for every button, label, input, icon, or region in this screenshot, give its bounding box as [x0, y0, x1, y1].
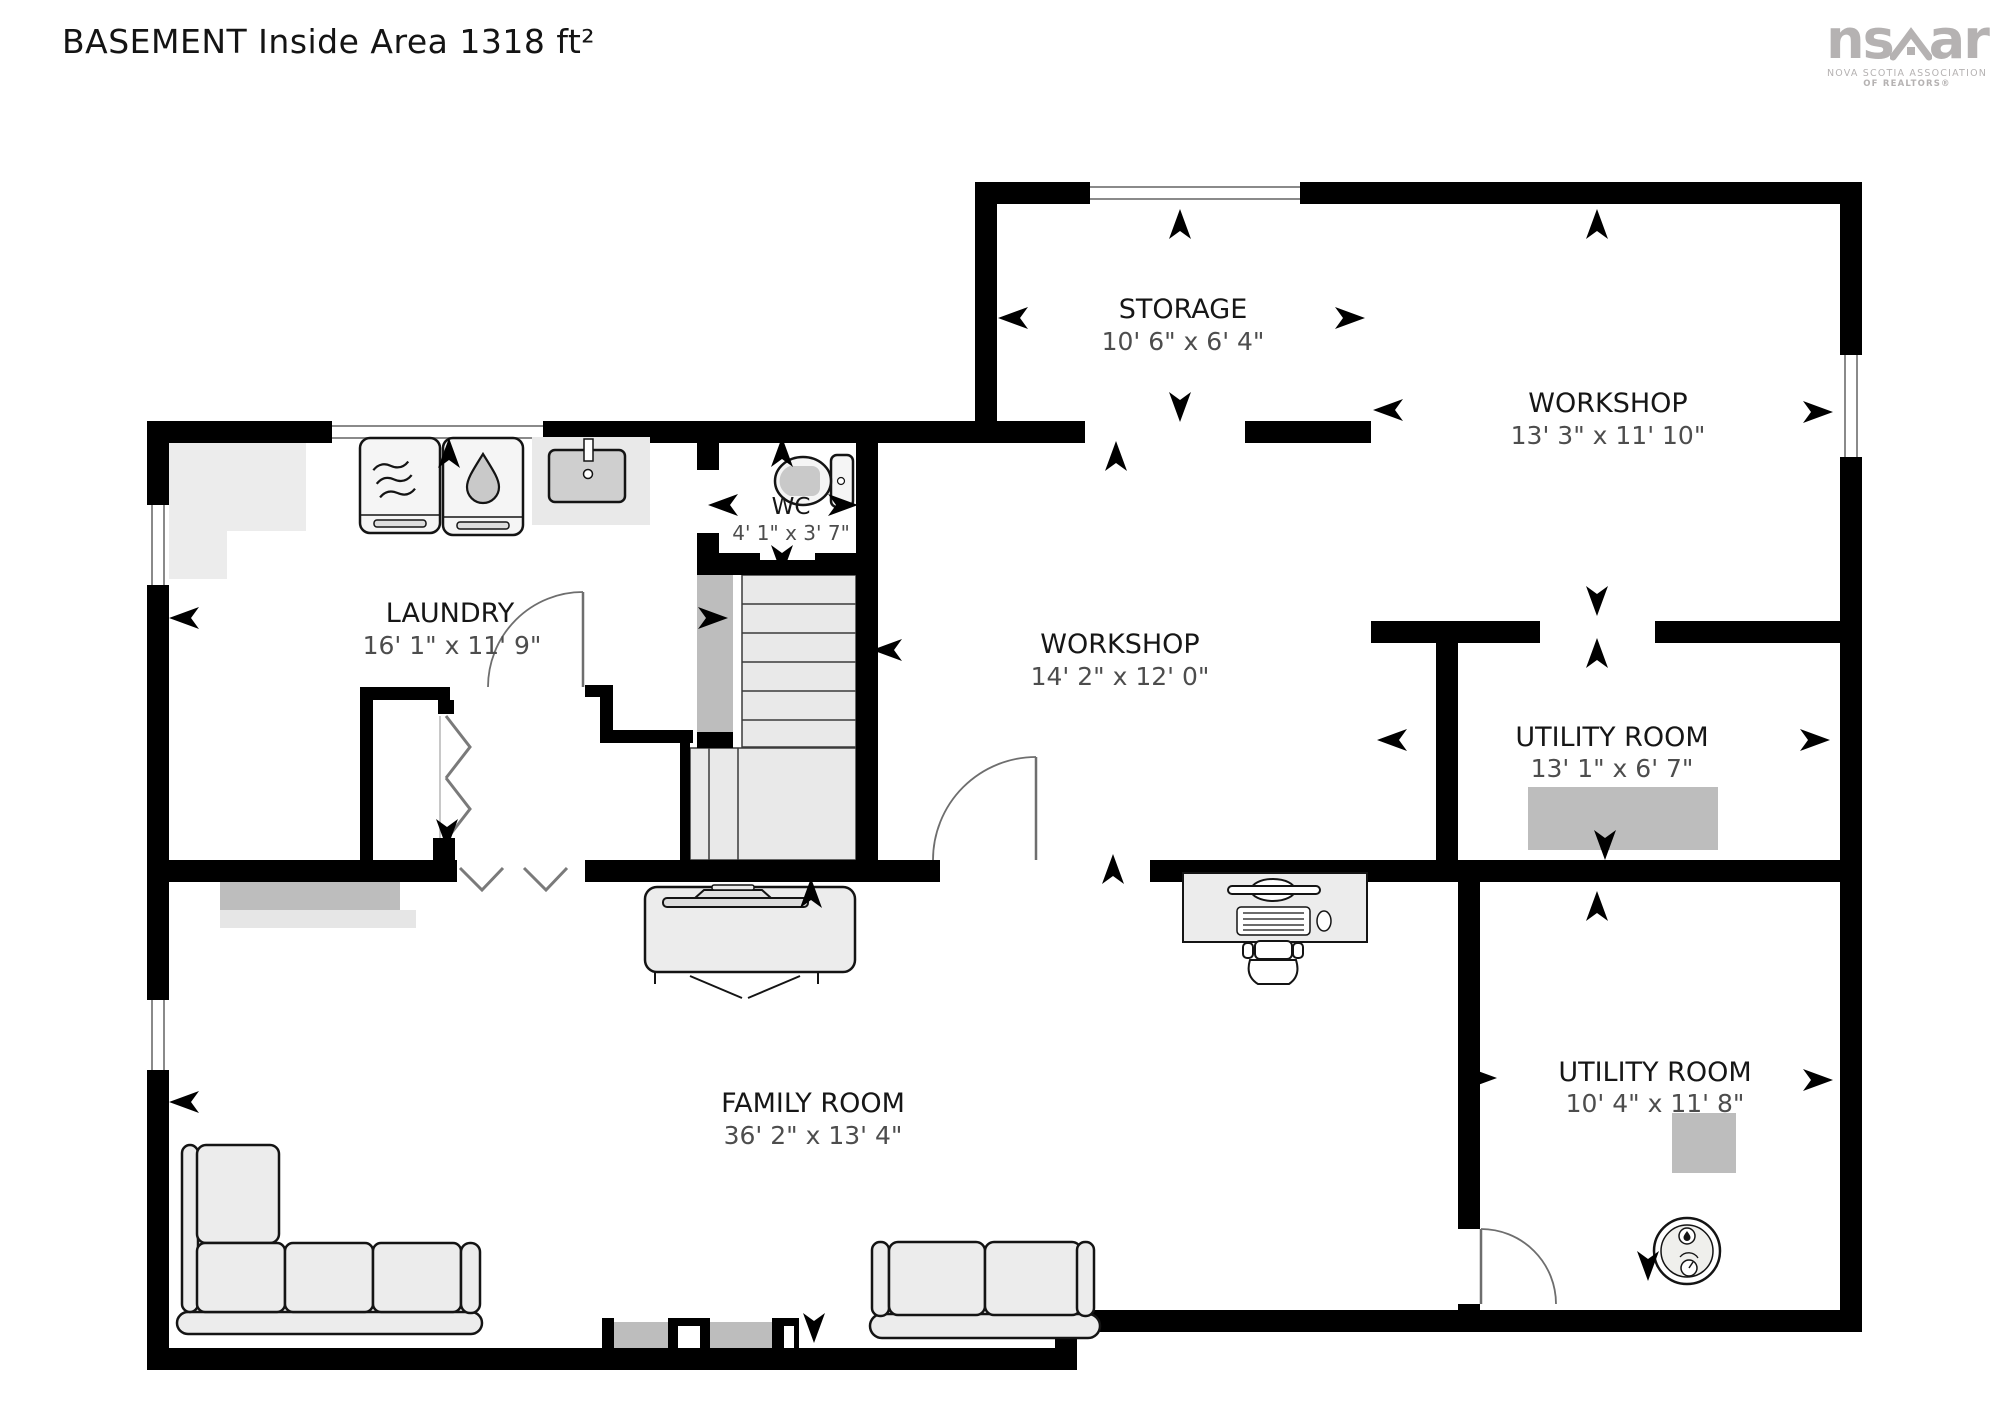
room-dims-laundry: 16' 1" x 11' 9": [363, 631, 542, 660]
room-label-workshop-2: WORKSHOP: [1040, 629, 1199, 660]
direction-arrow: [1803, 1069, 1833, 1091]
floorplan-drawing: STORAGE 10' 6" x 6' 4" WORKSHOP 13' 3" x…: [0, 0, 2000, 1422]
direction-arrow: [1373, 399, 1403, 421]
rug-dark: [220, 882, 400, 910]
loveseat-sofa: [870, 1242, 1100, 1338]
direction-arrow: [1105, 441, 1127, 471]
room-dims-wc: 4' 1" x 3' 7": [732, 521, 850, 545]
room-dims-workshop-1: 13' 3" x 11' 10": [1511, 421, 1706, 450]
direction-arrow: [1335, 307, 1365, 329]
room-dims-workshop-2: 14' 2" x 12' 0": [1031, 662, 1210, 691]
direction-arrow: [1586, 638, 1608, 668]
office-chair: [1243, 941, 1303, 984]
direction-arrow: [1377, 729, 1407, 751]
direction-arrow: [998, 307, 1028, 329]
utility-equipment: [1672, 1113, 1736, 1173]
dryer: [360, 438, 440, 533]
faucet-icon: [584, 439, 593, 461]
window: [147, 1000, 169, 1070]
direction-arrow: [1586, 586, 1608, 616]
fireplace: [602, 1318, 799, 1348]
direction-arrow: [1102, 854, 1124, 884]
washer: [443, 438, 523, 535]
staircase-upper: [742, 575, 856, 747]
room-label-laundry: LAUNDRY: [386, 598, 515, 629]
utility-equipment: [1528, 787, 1718, 850]
desk: [1183, 873, 1367, 942]
room-dims-utility-1: 13' 1" x 6' 7": [1531, 754, 1694, 783]
water-heater: [1654, 1218, 1720, 1284]
room-label-utility-1: UTILITY ROOM: [1515, 722, 1708, 753]
direction-arrow: [169, 1091, 199, 1113]
rug-light: [220, 910, 416, 928]
room-dims-family-room: 36' 2" x 13' 4": [724, 1121, 903, 1150]
window: [1090, 182, 1300, 204]
laundry-sink: [532, 437, 650, 525]
room-dims-storage: 10' 6" x 6' 4": [1102, 327, 1265, 356]
direction-arrow: [803, 1313, 825, 1343]
toilet-bowl: [780, 466, 820, 496]
tv-console: [645, 885, 855, 998]
direction-arrow: [169, 607, 199, 629]
direction-arrow: [1169, 392, 1191, 422]
bifold-door: [460, 868, 567, 890]
room-label-family-room: FAMILY ROOM: [721, 1088, 905, 1119]
mouse: [1317, 911, 1331, 931]
door-swing: [1481, 1229, 1556, 1304]
laundry-floor-patch: [169, 443, 306, 531]
room-label-workshop-1: WORKSHOP: [1528, 388, 1687, 419]
direction-arrow: [1637, 1251, 1659, 1281]
room-label-wc: WC: [772, 494, 811, 520]
direction-arrow: [1800, 729, 1830, 751]
room-label-storage: STORAGE: [1119, 294, 1248, 325]
direction-arrow: [1803, 401, 1833, 423]
direction-arrow: [1586, 891, 1608, 921]
window: [1840, 355, 1862, 457]
console-legs: [655, 972, 818, 998]
floorplan-page: BASEMENT Inside Area 1318 ft² ns ar NOVA…: [0, 0, 2000, 1422]
direction-arrow: [708, 494, 738, 516]
keyboard: [1237, 907, 1310, 935]
window: [147, 505, 169, 585]
stair-landing-ramp: [697, 575, 733, 732]
room-dims-utility-2: 10' 4" x 11' 8": [1566, 1089, 1745, 1118]
direction-arrow: [1586, 209, 1608, 239]
direction-arrow: [1169, 209, 1191, 239]
door-swing: [933, 757, 1036, 860]
laundry-floor-patch: [169, 531, 227, 579]
staircase-lower: [690, 748, 856, 860]
sectional-sofa: [177, 1145, 482, 1334]
room-label-utility-2: UTILITY ROOM: [1558, 1057, 1751, 1088]
